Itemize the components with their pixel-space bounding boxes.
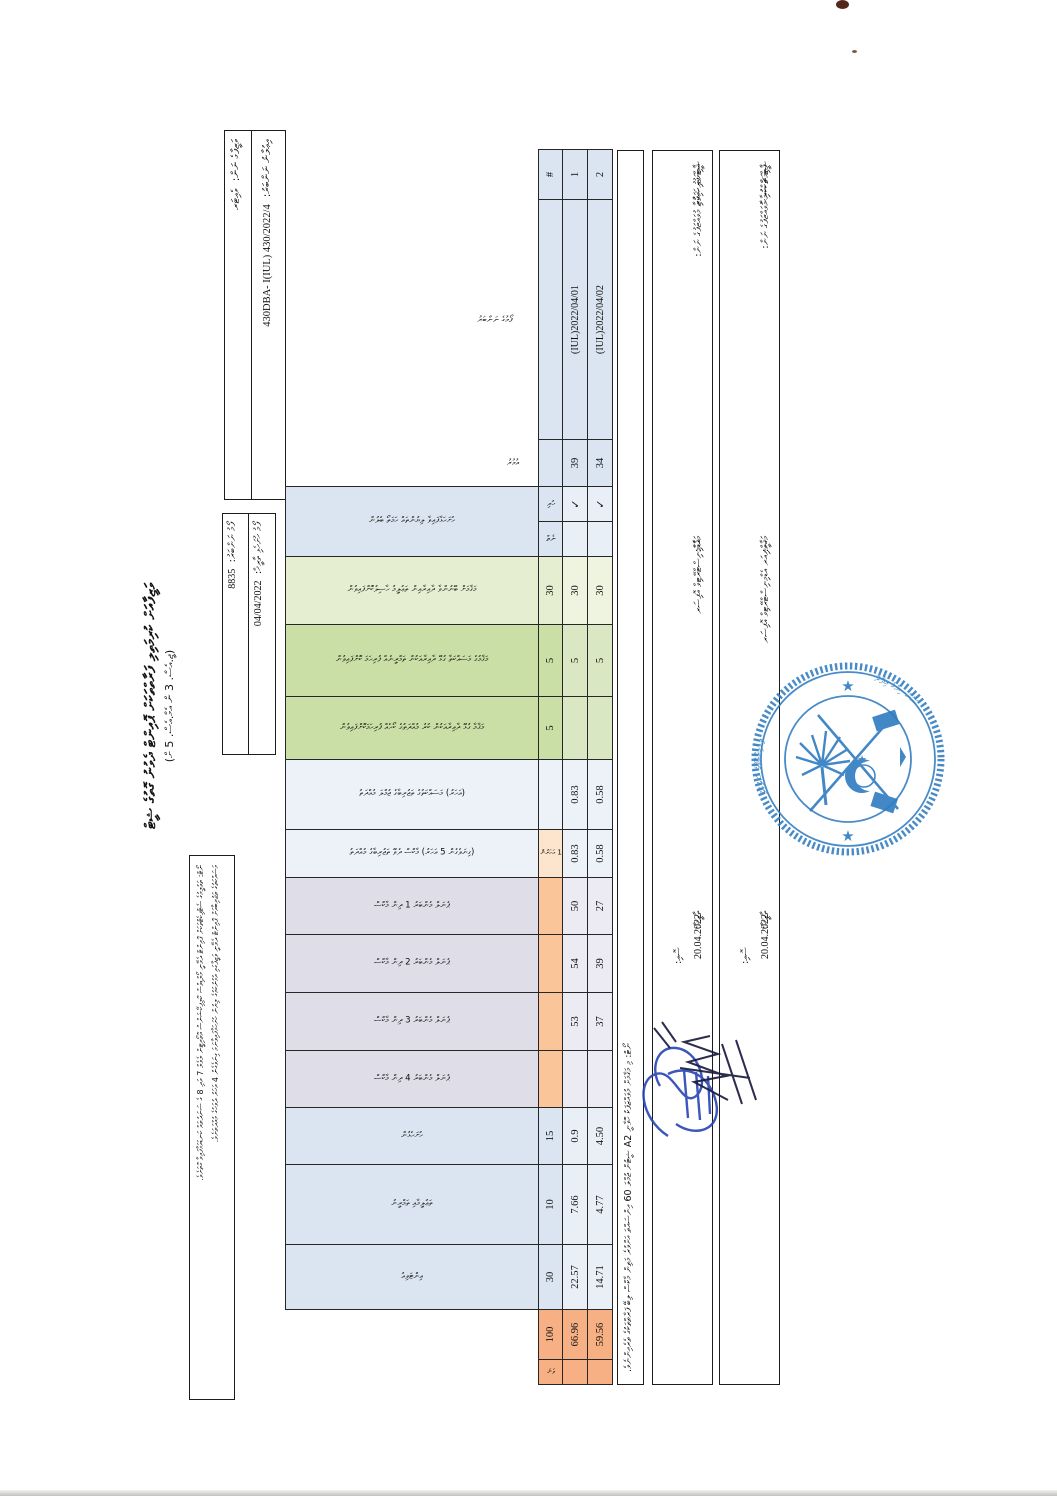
table-header-course: މަޤާމާ ގުޅޭ ދާއިރާއަކުން ކުރު މުއްދަތުގެ… (285, 696, 539, 760)
table-cell-docs-row2 (587, 521, 613, 557)
table-header-label-form: ފޯމުގެ ނަންބަރު (447, 315, 543, 325)
table-cell-c100-row1: 66.96 (562, 1309, 588, 1360)
table-header-label-age: އުމުރު (487, 459, 539, 469)
table-header-label: މަޤާމާ ގުޅޭ ދާއިރާއަކުން ކުރު މުއްދަތުގެ… (294, 721, 531, 734)
table-header-expCnt: (ގިނަވެގެން 5 އަހަރު) މާކްސް ދެވޭ ތަޖުރި… (285, 829, 539, 878)
seal-star-bottom: ★ (841, 827, 854, 845)
table-sublabel-docs-0: ހުރި (538, 486, 563, 522)
table-cell-form-row1: (IUL)2022/04/01 (562, 199, 588, 440)
cell-value: 37 (595, 1016, 606, 1027)
sig1-post-value: އެޑްމިނިސްޓްރޭޓިވް އޮފިސަރ (693, 539, 704, 613)
table-header-label: ޕެނަލް މެންބަރު 4 ދިން މާކްސް (294, 1072, 531, 1085)
table-header-label: (ގިނަވެގެން 5 އަހަރު) މާކްސް ދެވޭ ތަޖުރި… (294, 847, 531, 860)
table-header-label: ހުށަހަޅާފައިވާ ލިޔުންތައް ހަމަތޯ ބެލުން (294, 515, 531, 528)
signature-scribble-1 (644, 1048, 717, 1136)
table-cell-expCnt-row1: 0.83 (562, 829, 588, 878)
official-blue-seal: ★ ★ ދިވެހިރާއްޖޭގެ ސަރުކާރު ކައުންސިލްގެ… (748, 636, 948, 882)
cell-value: 30 (545, 1272, 556, 1283)
table-cell-expTot-row2: 0.58 (587, 759, 613, 830)
cell-label-vertical: ވަނަ (536, 1368, 566, 1377)
table-cell-rank-row2 (587, 1359, 613, 1385)
table-header-label: ހުށަހެޅުން (294, 1129, 531, 1142)
table-cell-course-row2 (587, 696, 613, 760)
cell-value: 4.50 (595, 1127, 606, 1145)
table-cell-p2-row1: 54 (562, 934, 588, 993)
table-label-p1 (538, 877, 563, 935)
signature-row-completed-by: ޝީޓް ފުރިހަމަކުރި މުވައްޒަފުގެ ނަން: އާމ… (652, 150, 713, 1385)
table-cell-p2-row2: 39 (587, 934, 613, 993)
table-label-course: 5 (538, 696, 563, 760)
table-header-train: މަޤާމުގެ މަސައްކަތާ ގުޅޭ ދާއިރާއަކުން ތަ… (285, 624, 539, 697)
sig1-sign-label: ސޮއި: (673, 947, 684, 964)
cell-value: # (545, 172, 556, 177)
cell-value: 50 (570, 901, 581, 912)
table-cell-c15-row1: 0.9 (562, 1107, 588, 1165)
table-header-label: ޕެނަލް މެންބަރު 3 ދިން މާކްސް (294, 1015, 531, 1028)
cell-value: 59.56 (595, 1323, 606, 1347)
sig1-post: މަޤާމް: އެޑްމިނިސްޓްރޭޓިވް އޮފިސަރ (673, 536, 684, 539)
cell-value: ✓ (594, 499, 607, 508)
table-cell-hash-row2: 2 (587, 149, 613, 200)
cell-value: 34 (595, 458, 606, 469)
table-label-c10: 10 (538, 1164, 563, 1245)
table-label-expCnt: 1 އަހަރުން (538, 829, 563, 878)
cell-value: (IUL)2022/04/02 (595, 285, 606, 354)
sig1-role-and-name: ޝީޓް ފުރިހަމަކުރި މުވައްޒަފުގެ ނަން: އާމ… (673, 161, 684, 164)
table-cell-course-row1 (562, 696, 588, 760)
sig1-name: އާމިނަތު ޝިފާޒާ (693, 164, 704, 206)
table-label-hash: # (538, 149, 563, 200)
table-cell-age-row1: 39 (562, 439, 588, 487)
table-cell-train-row1: 5 (562, 624, 588, 697)
cell-value: 39 (570, 458, 581, 469)
sig2-role-and-name: ޝީޓް ޗެކްކުރި މުވައްޒަފުގެ ނަން: ފާޠިމަތ… (740, 161, 751, 164)
cell-value: 0.9 (570, 1129, 581, 1142)
table-cell-docs-row1: ✓ (562, 486, 588, 522)
table-cell-docs-row1 (562, 521, 588, 557)
cell-value: 30 (545, 585, 556, 596)
table-header-label: ތަޢުލީމާއި ތަމްރީނު (294, 1198, 531, 1211)
cell-value: 30 (570, 585, 581, 596)
sig2-name: ފާޠިމަތު ސަމާޙާ (760, 164, 771, 203)
seal-star-top: ★ (841, 677, 854, 695)
table-header-label: ޕެނަލް މެންބަރު 1 ދިން މާކްސް (294, 899, 531, 912)
cell-value: 5 (595, 658, 606, 663)
sig2-post-value: ސީނިއަރ އެޑްމިނިސްޓްރޭޓިވް އޮފިސަރ (760, 539, 771, 643)
table-header-docs: ހުށަހަޅާފައިވާ ލިޔުންތައް ހަމަތޯ ބެލުން (285, 486, 539, 557)
table-cell-c10-row1: 7.66 (562, 1164, 588, 1245)
table-cell-c30-row2: 14.71 (587, 1244, 613, 1310)
table-cell-form-row2: (IUL)2022/04/02 (587, 199, 613, 440)
table-cell-c100-row2: 59.56 (587, 1309, 613, 1360)
table-cell-p4-row1 (562, 1050, 588, 1108)
cell-value: 14.71 (595, 1265, 606, 1289)
table-label-p2 (538, 934, 563, 993)
sig2-sign-label: ސޮއި: (740, 947, 751, 964)
table-cell-train-row2: 5 (587, 624, 613, 697)
table-label-c15: 15 (538, 1107, 563, 1165)
table-cell-rank-row1 (562, 1359, 588, 1385)
sig2-date: ތާރީޚް: 20.04.2022 (740, 911, 751, 914)
table-header-c10: ތަޢުލީމާއި ތަމްރީނު (285, 1164, 539, 1245)
table-label-edu: 30 (538, 556, 563, 625)
cell-label-vertical: 1 އަހަރުން (540, 849, 562, 858)
cell-value: 22.57 (570, 1265, 581, 1289)
table-label-p4 (538, 1050, 563, 1108)
table-header-p2: ޕެނަލް މެންބަރު 2 ދިން މާކްސް (285, 934, 539, 993)
table-cell-p3-row1: 53 (562, 992, 588, 1051)
cell-value: 0.58 (595, 844, 606, 862)
cell-value: ✓ (569, 499, 582, 508)
handwritten-signatures (610, 1006, 780, 1166)
cell-value: 5 (570, 658, 581, 663)
cell-value: 0.83 (570, 785, 581, 803)
table-cell-hash-row1: 1 (562, 149, 588, 200)
cell-value: 4.77 (595, 1195, 606, 1213)
table-cell-docs-row2: ✓ (587, 486, 613, 522)
pass-note-line: ނޯޓް: މި މަޤާމަށް މުވައްޒަފަކު ހޮވާނީ A2… (617, 150, 644, 1385)
brown-speck-1 (836, 0, 849, 9)
table-label-expTot (538, 759, 563, 830)
table-header-label: ޕެނަލް މެންބަރު 2 ދިން މާކްސް (294, 957, 531, 970)
table-cell-edu-row2: 30 (587, 556, 613, 625)
cell-value: 39 (595, 958, 606, 969)
table-header-label: މަޤާމުގެ މަސައްކަތާ ގުޅޭ ދާއިރާއަކުން ތަ… (294, 654, 531, 667)
cell-value: (IUL)2022/04/01 (570, 285, 581, 354)
table-cell-age-row2: 34 (587, 439, 613, 487)
table-header-edu: މަޤާމަށް ބޭނުންވާ ދާއިރާއިން ތަޢުލީމު ހާ… (285, 556, 539, 625)
cell-value: 53 (570, 1016, 581, 1027)
signature-scribble-2 (654, 1022, 756, 1104)
table-header-p3: ޕެނަލް މެންބަރު 3 ދިން މާކްސް (285, 992, 539, 1051)
table-cell-p1-row1: 50 (562, 877, 588, 935)
table-label-p3 (538, 992, 563, 1051)
sig1-date-value: 20.04.2022 (693, 914, 704, 959)
seal-ring-text-left: ދިވެހިރާއްޖޭގެ ސަރުކާރު (754, 737, 771, 796)
table-cell-edu-row1: 30 (562, 556, 588, 625)
cell-value: 5 (545, 658, 556, 663)
cell-value: 27 (595, 901, 606, 912)
cell-value: 54 (570, 958, 581, 969)
cell-value: 0.58 (595, 785, 606, 803)
table-label-age (538, 439, 563, 487)
cell-value: 1 (570, 172, 581, 177)
seal-crescent-star: ★ (845, 753, 875, 793)
sig2-date-value: 20.04.2022 (760, 914, 771, 959)
table-cell-expTot-row1: 0.83 (562, 759, 588, 830)
cell-value: 30 (595, 585, 606, 596)
cell-label-vertical: ނެތް (539, 534, 563, 544)
cell-value: 66.96 (570, 1323, 581, 1347)
table-header-label: މަޤާމަށް ބޭނުންވާ ދާއިރާއިން ތަޢުލީމު ހާ… (294, 584, 531, 597)
cell-label-vertical: ހުރި (539, 499, 563, 509)
seal-ring-text-right: ކައުންސިލްގެ އިދާރާ (873, 674, 919, 708)
seal-emblem: ★ (796, 710, 906, 814)
table-label-rank: ވަނަ (538, 1359, 563, 1385)
cell-value: 2 (595, 172, 606, 177)
table-cell-c10-row2: 4.77 (587, 1164, 613, 1245)
cell-value: 5 (545, 725, 556, 730)
cell-value: 10 (545, 1199, 556, 1210)
table-cell-expCnt-row2: 0.58 (587, 829, 613, 878)
table-header-c30: އިންޓަވިއު (285, 1244, 539, 1310)
table-label-train: 5 (538, 624, 563, 697)
table-sublabel-docs-1: ނެތް (538, 521, 563, 557)
cell-value: 15 (545, 1131, 556, 1142)
table-header-expTot: (އަހަރު) މަސައްކަތުގެ ތަޖުރިބާގެ ޖުމްލަ … (285, 759, 539, 830)
cell-value: 7.66 (570, 1195, 581, 1213)
table-cell-p1-row2: 27 (587, 877, 613, 935)
table-header-p4: ޕެނަލް މެންބަރު 4 ދިން މާކްސް (285, 1050, 539, 1108)
table-label-c30: 30 (538, 1244, 563, 1310)
table-label-c100: 100 (538, 1309, 563, 1360)
table-header-label: (އަހަރު) މަސައްކަތުގެ ތަޖުރިބާގެ ޖުމްލަ … (294, 788, 531, 801)
sig2-post: މަޤާމް: ސީނިއަރ އެޑްމިނިސްޓްރޭޓިވް އޮފިސ… (740, 536, 751, 539)
cell-value: 0.83 (570, 844, 581, 862)
table-header-c15: ހުށަހެޅުން (285, 1107, 539, 1165)
sig1-date: ތާރީޚް: 20.04.2022 (673, 911, 684, 914)
table-header-label: އިންޓަވިއު (294, 1270, 531, 1283)
scanned-document-page: { "document": { "title_line1": "ވަޒީފާއަ… (0, 0, 1057, 1496)
brown-speck-2 (852, 50, 857, 53)
table-cell-c30-row1: 22.57 (562, 1244, 588, 1310)
table-header-p1: ޕެނަލް މެންބަރު 1 ދިން މާކްސް (285, 877, 539, 935)
cell-value: 100 (545, 1327, 556, 1343)
scan-bottom-edge (0, 1490, 1057, 1496)
